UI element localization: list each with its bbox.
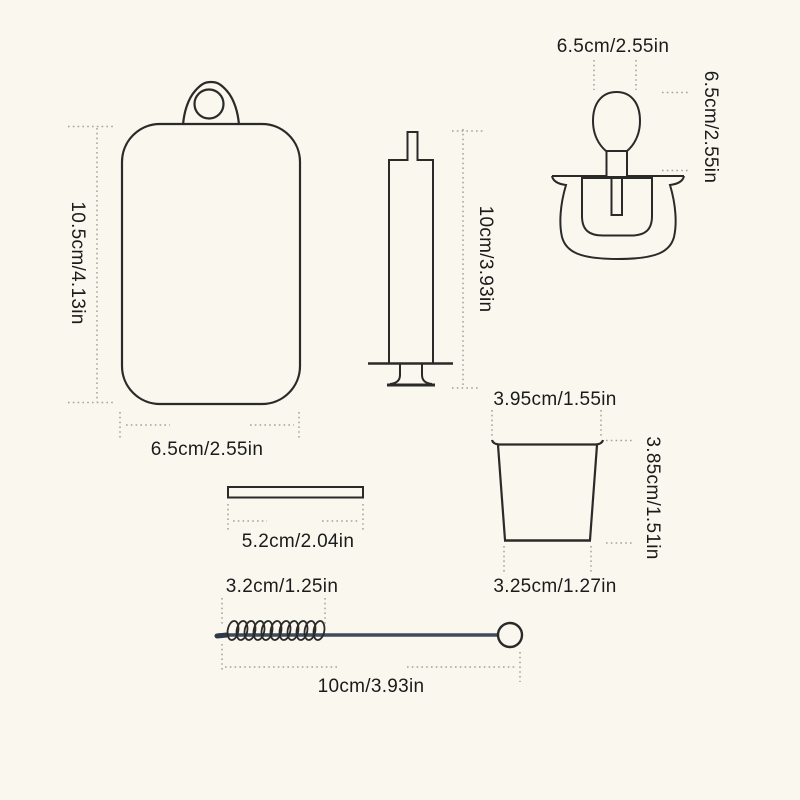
board-hole-icon (195, 90, 224, 119)
flat-bar-dimension-lines (228, 504, 363, 530)
syringe-drawing (368, 132, 453, 385)
board-drawing (122, 82, 300, 404)
flat-bar-length-dimension-label: 5.2cm/2.04in (242, 531, 354, 553)
brush-drawing (217, 620, 522, 647)
brush-coil-icon (226, 620, 326, 641)
brush-head-length-dimension-label: 3.2cm/1.25in (226, 576, 338, 598)
pacifier-height-dimension-label: 6.5cm/2.55in (699, 71, 721, 183)
cup-drawing (492, 440, 603, 541)
product-dimension-diagram: 10.5cm/4.13in 6.5cm/2.55in 10cm/3.93in 6… (0, 0, 800, 800)
flat-bar-drawing (228, 487, 363, 498)
pacifier-dimension-lines (594, 60, 690, 171)
pacifier-drawing (552, 92, 684, 259)
cup-height-dimension-label: 3.85cm/1.51in (641, 436, 663, 559)
board-dimension-lines (68, 127, 299, 441)
board-height-dimension-label: 10.5cm/4.13in (66, 201, 88, 324)
brush-ball-tip-icon (498, 623, 522, 647)
pacifier-width-dimension-label: 6.5cm/2.55in (557, 36, 669, 58)
cup-bottom-diameter-dimension-label: 3.25cm/1.27in (493, 576, 616, 598)
board-width-dimension-label: 6.5cm/2.55in (151, 439, 263, 461)
cup-top-diameter-dimension-label: 3.95cm/1.55in (493, 389, 616, 411)
syringe-length-dimension-label: 10cm/3.93in (474, 206, 496, 313)
brush-total-length-dimension-label: 10cm/3.93in (318, 676, 425, 698)
cup-dimension-lines (492, 410, 634, 573)
